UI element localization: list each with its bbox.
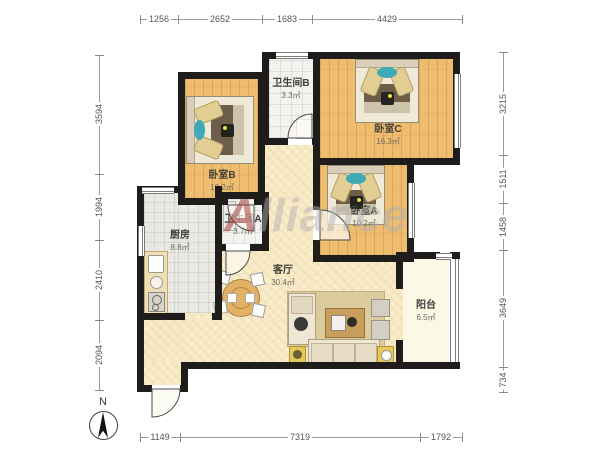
entry-door — [152, 389, 180, 417]
door-swings — [0, 0, 600, 450]
bedroom-a-door — [320, 210, 350, 240]
bathroom-a-door — [226, 251, 250, 275]
bedroom-b-door — [228, 205, 254, 231]
bathroom-b-door — [288, 114, 312, 138]
floor-plan: 卧室B10.2㎡ 卫生间B3.3㎡ 卧室C16.3㎡ 厨房8.8㎡ 卫生间A3.… — [0, 0, 600, 450]
